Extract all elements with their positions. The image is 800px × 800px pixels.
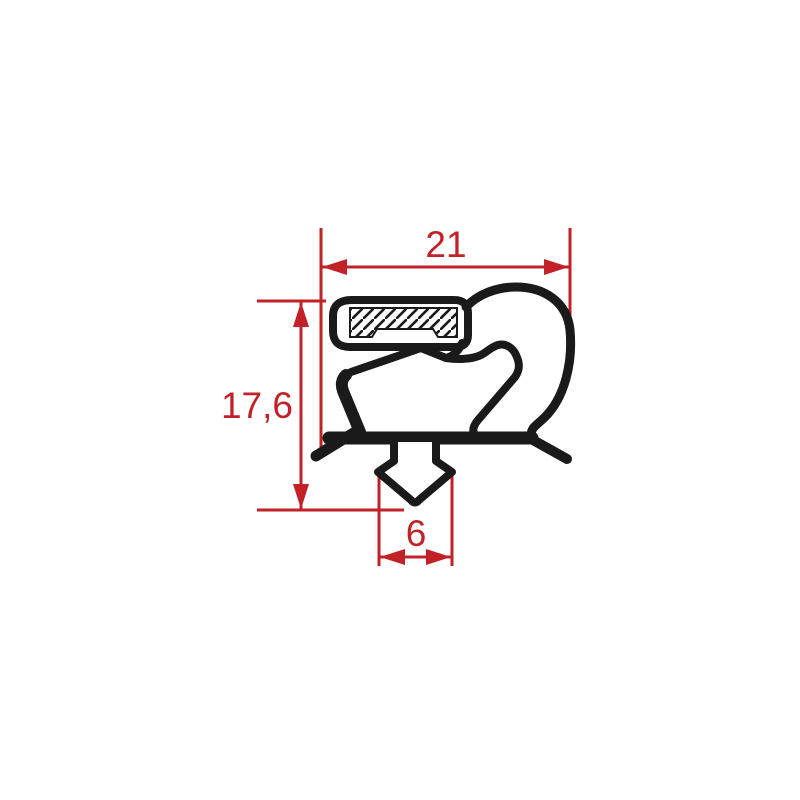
- dart-anchor: [378, 442, 452, 503]
- arrowhead-left-icon: [380, 549, 405, 565]
- funnel-left-wall: [342, 375, 360, 432]
- funnel-and-bulb-inner-wall: [351, 345, 519, 435]
- arrowhead-up-icon: [293, 302, 309, 327]
- overall-width-label: 21: [425, 224, 466, 265]
- dart-width-label: 6: [406, 513, 427, 554]
- gasket-profile: [316, 287, 571, 503]
- arrowhead-down-icon: [293, 484, 309, 509]
- arrowhead-right-icon: [426, 549, 451, 565]
- gasket-technical-drawing: 21 17,6 6: [0, 0, 800, 800]
- overall-height-label: 17,6: [221, 385, 293, 426]
- arrowhead-right-icon: [544, 259, 569, 275]
- technical-drawing-page: 21 17,6 6: [0, 0, 800, 800]
- right-wing: [533, 440, 567, 459]
- arrowhead-left-icon: [322, 259, 347, 275]
